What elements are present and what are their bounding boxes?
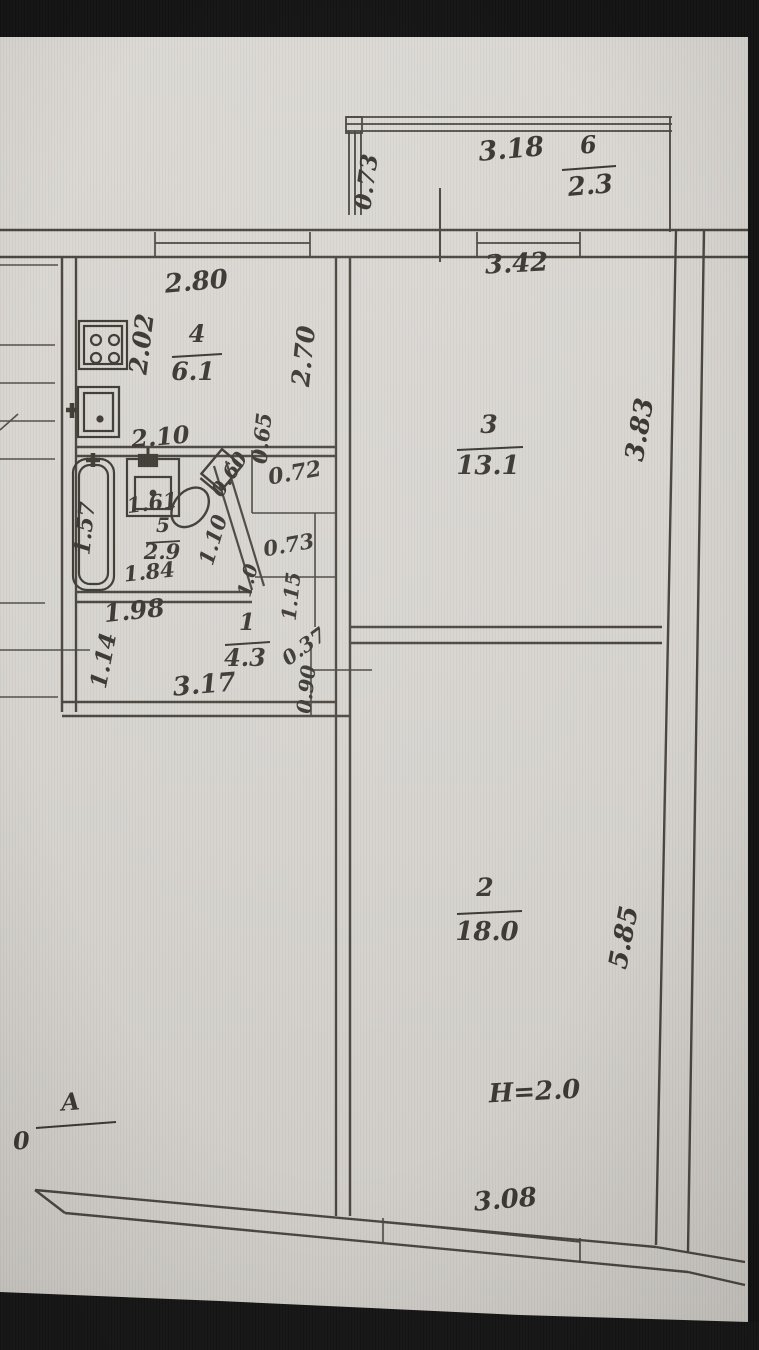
room2-number: 2 xyxy=(475,873,493,902)
room3-area: 13.1 xyxy=(456,451,519,481)
dim-balcony-width: 3.18 xyxy=(477,131,545,168)
dim-room2-bottom: 3.08 xyxy=(472,1182,538,1217)
balcony-number: 6 xyxy=(579,129,598,159)
dim-room3-top: 3.42 xyxy=(484,247,549,280)
floor-plan-svg: 0.73 3.18 6 2.3 3.42 3.83 2.70 3 13.1 2.… xyxy=(0,0,759,1350)
room2-area: 18.0 xyxy=(455,917,518,947)
dim-kitchen-top: 2.80 xyxy=(162,264,229,299)
dim-shaft-lower-height: 1.15 xyxy=(277,571,306,622)
axis-letter: A xyxy=(58,1086,81,1116)
bathroom-number: 5 xyxy=(156,513,170,537)
dim-kitchen-bottom: 2.10 xyxy=(129,420,191,454)
dim-bath-bottom: 1.84 xyxy=(122,556,175,586)
room2-height-note: H=2.0 xyxy=(487,1075,581,1110)
kitchen-area: 6.1 xyxy=(171,357,215,386)
dim-shaft-height: 0.65 xyxy=(246,411,276,464)
axis-below: 0 xyxy=(12,1125,31,1155)
floor-plan-photo: 0.73 3.18 6 2.3 3.42 3.83 2.70 3 13.1 2.… xyxy=(0,0,759,1350)
room3-number: 3 xyxy=(480,410,497,439)
hall-number: 1 xyxy=(239,609,255,636)
balcony-area: 2.3 xyxy=(565,169,614,203)
kitchen-number: 4 xyxy=(189,319,206,348)
dim-hall-bottom: 3.17 xyxy=(171,667,237,702)
dim-hall-niche-height: 0.90 xyxy=(292,664,321,715)
